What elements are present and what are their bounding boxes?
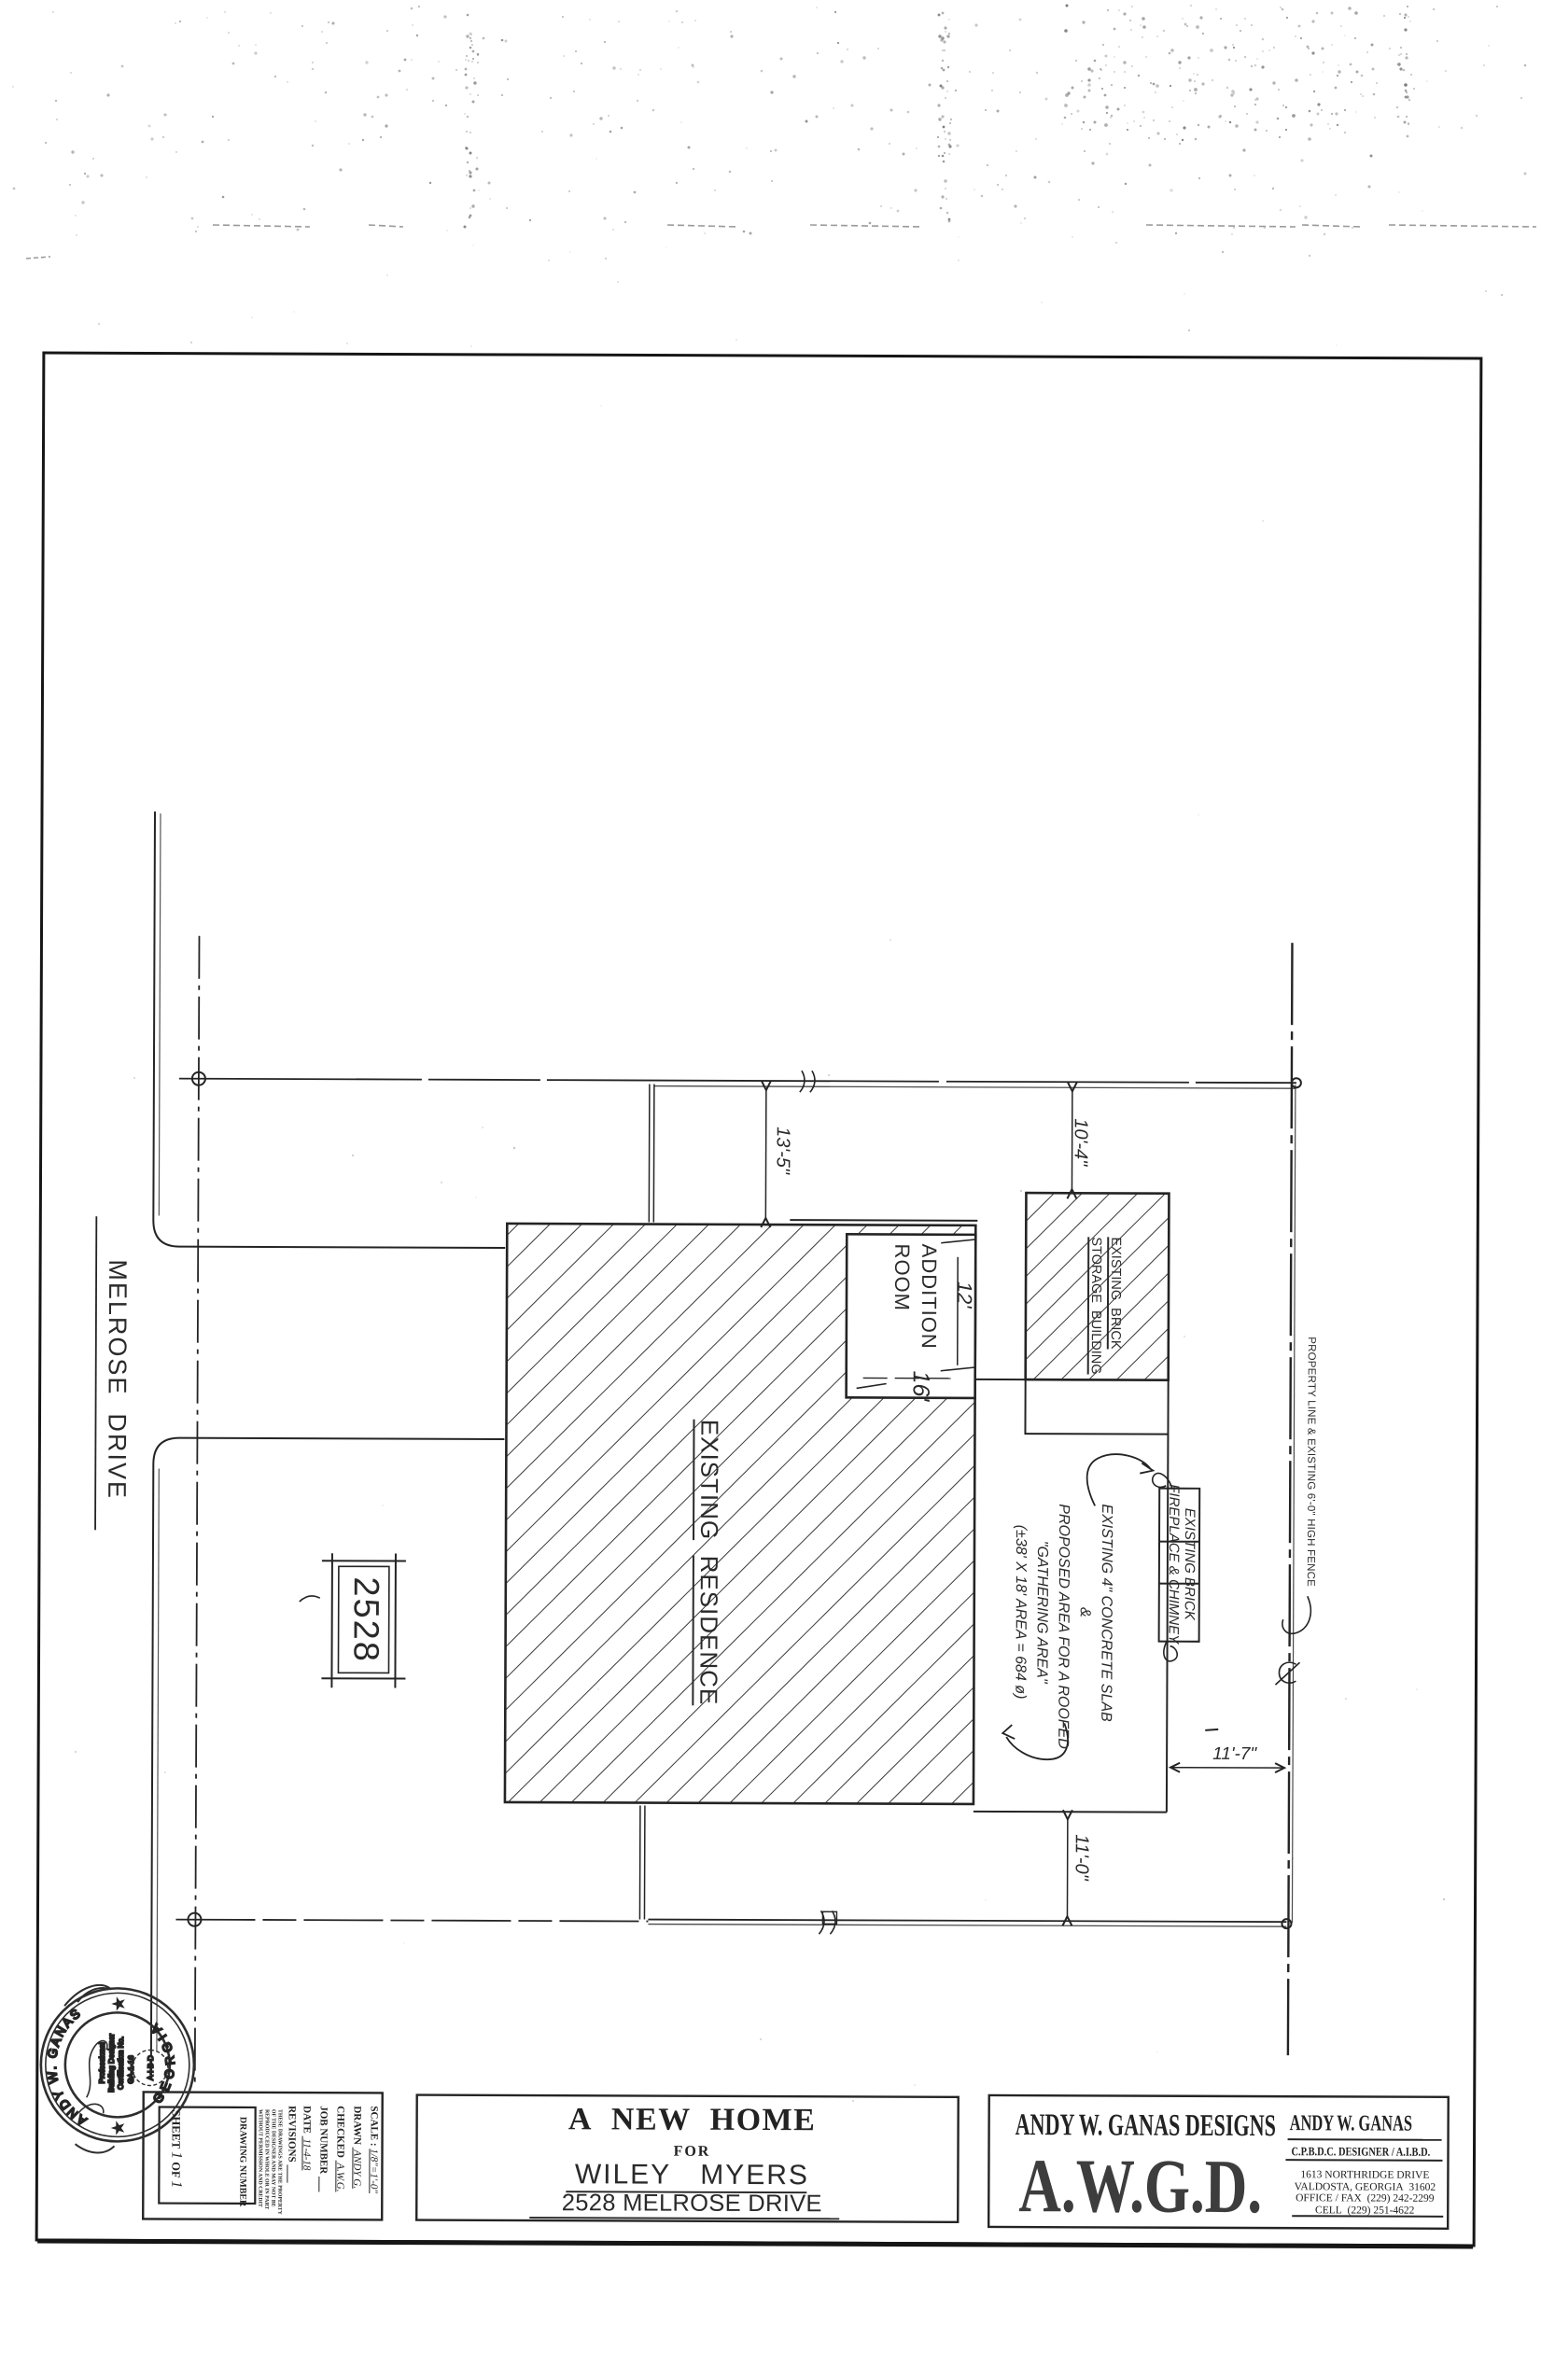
svg-text:Professional: Professional [98, 2042, 106, 2083]
svg-text:A·I·B·D: A·I·B·D [147, 2055, 155, 2080]
svg-text:★: ★ [112, 1999, 125, 2009]
svg-text:ANDY W. GANAS: ANDY W. GANAS [45, 2005, 90, 2128]
svg-text:Building Designer: Building Designer [107, 2034, 116, 2093]
svg-text:Certification No.: Certification No. [117, 2037, 125, 2090]
svg-text:★: ★ [112, 2123, 125, 2134]
